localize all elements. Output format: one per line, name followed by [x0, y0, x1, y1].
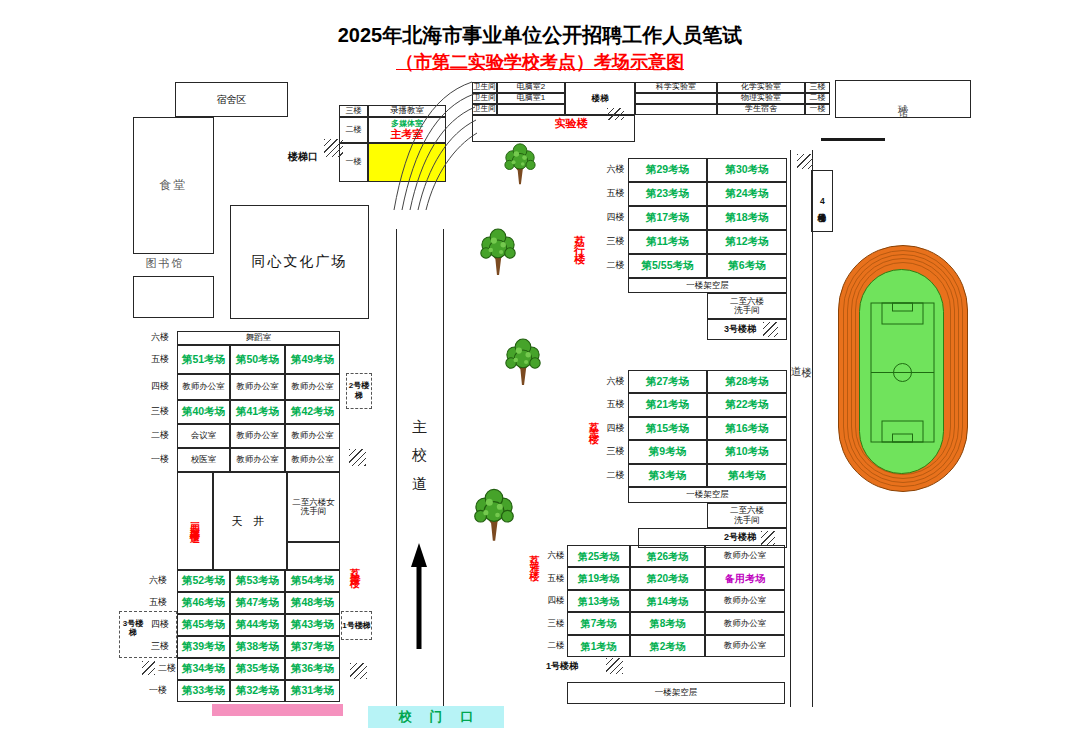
exam-room-cell: 第51考场: [177, 345, 230, 374]
dorm-area-box: 宿舍区: [175, 82, 288, 117]
floor-label: 三楼: [603, 230, 628, 254]
exam-room-cell: 第48考场: [285, 592, 340, 614]
exam-room-cell: 第11考场: [628, 230, 707, 254]
floor-label: 四楼: [603, 206, 628, 230]
office-cell: 教师办公室: [177, 374, 230, 400]
exam-room-cell: 第47考场: [230, 592, 285, 614]
floor-label: 二楼: [603, 254, 628, 278]
exam-room-cell: 第7考场: [567, 612, 630, 635]
exam-room-cell: 第1考场: [567, 635, 630, 657]
soccer-field: [859, 269, 944, 474]
clinic-cell: 校医室: [177, 448, 230, 472]
floor-label: 一楼: [145, 448, 175, 472]
exam-room-cell: 第20考场: [630, 567, 705, 590]
office-cell: 教师办公室: [705, 590, 785, 612]
exam-room-cell: 第30考场: [707, 158, 787, 182]
empty-cell: [497, 104, 565, 115]
exam-room-cell: 第49考场: [285, 345, 340, 374]
empty-cell: [287, 542, 340, 570]
exam-room-cell: 第24考场: [707, 182, 787, 206]
gate-pink-bar: [212, 704, 343, 716]
floor-label: 四楼: [545, 590, 567, 612]
courtyard-cell: 天 井: [213, 472, 287, 570]
lab-stairs-cell: 楼梯: [565, 82, 635, 115]
floor-label: 五楼: [603, 393, 628, 417]
computer-room-cell: 电脑室1: [497, 93, 565, 104]
exam-room-cell: 第40考场: [177, 400, 230, 424]
floor-label: 六楼: [545, 545, 567, 567]
ground-floor-cell: 一楼架空层: [628, 487, 787, 503]
floor-label: 一楼: [805, 104, 830, 115]
stair-hatch-icon: [606, 658, 623, 674]
exam-room-cell: 第52考场: [177, 570, 230, 592]
science-lab-cell: 科学实验室: [635, 82, 717, 93]
floor-label: 四楼: [603, 417, 628, 440]
floor-label: 三楼: [805, 82, 830, 93]
exam-room-cell: 第26考场: [630, 545, 705, 567]
exam-room-cell: 第45考场: [177, 614, 230, 636]
office-cell: 教师办公室: [230, 424, 285, 448]
stair3-label: 3号楼梯: [120, 615, 146, 643]
exam-room-cell: 第35考场: [230, 658, 285, 680]
exam-room-cell: 第12考场: [707, 230, 787, 254]
library-box: [133, 276, 214, 318]
empty-cell: [635, 104, 717, 115]
exam-room-cell: 第13考场: [567, 590, 630, 612]
stair-hatch-icon: [142, 661, 155, 675]
stair-hatch-icon: [350, 663, 367, 679]
office-cell: 教师办公室: [285, 424, 340, 448]
exam-room-cell: 第42考场: [285, 400, 340, 424]
page-subtitle: （市第二实验学校考点）考场示意图: [0, 50, 1080, 74]
exam-room-cell: 第22考场: [707, 393, 787, 417]
building-name-lizhi: 荔志楼: [586, 397, 601, 449]
floor-label: 五楼: [545, 567, 567, 590]
computer-room-cell: 电脑室2: [497, 82, 565, 93]
floor-label: 二楼: [545, 635, 567, 657]
floor-label: 二楼: [145, 424, 175, 448]
meeting-room-cell: 会议室: [177, 424, 230, 448]
direction-arrow-icon: [410, 543, 428, 653]
corridor-cell: 三四五楼楼道: [177, 472, 213, 570]
tree-icon: [477, 227, 519, 277]
page-title: 2025年北海市事业单位公开招聘工作人员笔试: [0, 22, 1080, 49]
floor-label: 五楼: [145, 345, 175, 374]
exam-room-cell: 第9考场: [628, 440, 707, 464]
floor-label: 二楼: [805, 93, 830, 104]
side-road-label: 楼道: [790, 358, 813, 488]
tree-icon: [502, 337, 544, 387]
exam-room-cell: 第31考场: [285, 680, 340, 702]
exam-room-cell: 第23考场: [628, 182, 707, 206]
floor-label: 一楼: [339, 143, 368, 182]
soccer-pitch-lines: [860, 270, 945, 475]
exam-room-cell: 第15考场: [628, 417, 707, 440]
floor-label: 六楼: [603, 158, 628, 182]
stair-entrance-label: 楼梯口: [281, 149, 325, 164]
exam-room-cell: 第28考场: [707, 370, 787, 393]
exam-room-cell: 第39考场: [177, 636, 230, 658]
exam-room-cell: 第38考场: [230, 636, 285, 658]
exam-room-cell: 第37考场: [285, 636, 340, 658]
office-cell: 教师办公室: [285, 374, 340, 400]
stair-hatch-icon: [607, 108, 624, 120]
exam-room-cell: 第43考场: [285, 614, 340, 636]
floor-label: 三楼: [339, 105, 368, 117]
office-cell: 教师办公室: [230, 448, 285, 472]
plaza-box: 同心文化广场: [230, 205, 369, 319]
stair-hatch-icon: [349, 449, 366, 466]
reserve-room-cell: 备用考场: [705, 567, 785, 590]
exam-room-cell: 第17考场: [628, 206, 707, 230]
stair4-box: 4号楼梯: [811, 170, 833, 232]
exam-room-cell: 第54考场: [285, 570, 340, 592]
building-name-lishan: 荔善楼: [347, 540, 362, 594]
student-dorm-cell: 学生宿舍: [717, 104, 805, 115]
exam-room-cell: 第2考场: [630, 635, 705, 657]
exam-room-cell: 第5/55考场: [628, 254, 707, 278]
exam-room-cell: 第8考场: [630, 612, 705, 635]
exam-room-cell: 第16考场: [707, 417, 787, 440]
floor-label: 四楼: [145, 374, 175, 400]
physics-lab-cell: 物理实验室: [717, 93, 805, 104]
washroom-cell: 二至六楼 洗手间: [707, 293, 787, 319]
stair-hatch-icon: [324, 139, 343, 157]
exam-room-cell: 第10考场: [707, 440, 787, 464]
ground-floor-cell: 一楼架空层: [628, 278, 787, 293]
stair1-label: 1号楼梯: [546, 660, 602, 673]
canteen-box: 食堂: [133, 117, 214, 254]
lab-building-name: 实验楼: [544, 116, 598, 131]
washroom-line2: 洗手间: [734, 306, 760, 315]
stair1-dashed-box: 1号楼梯: [341, 611, 372, 640]
stair2-dashed-box: 2号楼梯: [346, 373, 372, 409]
path-curves: [390, 80, 478, 212]
exam-room-cell: 第18考场: [707, 206, 787, 230]
exam-room-cell: 第33考场: [177, 680, 230, 702]
tree-icon: [502, 142, 538, 186]
office-cell: 教师办公室: [230, 374, 285, 400]
exam-room-cell: 第4考场: [707, 464, 787, 487]
office-cell: 教师办公室: [705, 635, 785, 657]
floor-label: 一楼: [142, 680, 174, 702]
exam-room-cell: 第29考场: [628, 158, 707, 182]
washroom-line2: 洗手间: [301, 507, 327, 516]
office-cell: 教师办公室: [705, 545, 785, 567]
wall-line: [821, 138, 885, 141]
exam-room-cell: 第3考场: [628, 464, 707, 487]
floor-label: 六楼: [603, 370, 628, 393]
exam-room-cell: 第19考场: [567, 567, 630, 590]
floor-label: 二楼: [156, 658, 178, 680]
exam-room-cell: 第14考场: [630, 590, 705, 612]
washroom-cell: 二至六楼女 洗手间: [287, 472, 340, 542]
washroom-line2: 洗手间: [734, 516, 760, 525]
exam-room-cell: 第32考场: [230, 680, 285, 702]
stair-hatch-icon: [763, 322, 778, 337]
school-gate: 校门口: [368, 706, 504, 728]
exam-room-cell: 第46考场: [177, 592, 230, 614]
floor-label: 二楼: [339, 117, 368, 143]
exam-room-cell: 第21考场: [628, 393, 707, 417]
floor-label: 二楼: [603, 464, 628, 487]
building-name-liya: 荔雅楼: [526, 524, 542, 594]
exam-room-cell: 第34考场: [177, 658, 230, 680]
running-track: [838, 245, 968, 492]
office-cell: 教师办公室: [705, 612, 785, 635]
exam-room-cell: 第44考场: [230, 614, 285, 636]
stair-hatch-icon: [761, 531, 775, 545]
floor-label: 六楼: [142, 570, 174, 592]
floor-label: 五楼: [603, 182, 628, 206]
exam-room-cell: 第50考场: [230, 345, 285, 374]
ball-hall-box: 球馆: [835, 80, 971, 118]
floor-label: 三楼: [145, 400, 175, 424]
exam-room-cell: 第25考场: [567, 545, 630, 567]
exam-room-cell: 第53考场: [230, 570, 285, 592]
empty-cell: [635, 93, 717, 104]
floor-label: 三楼: [603, 440, 628, 464]
washroom-cell: 二至六楼 洗手间: [707, 503, 787, 528]
exam-room-cell: 第36考场: [285, 658, 340, 680]
ground-floor-cell: 一楼架空层: [567, 682, 785, 704]
stair-hatch-icon: [797, 154, 813, 169]
library-label: 图书馆: [133, 254, 197, 272]
chemistry-lab-cell: 化学实验室: [717, 82, 805, 93]
floor-label: 三楼: [545, 612, 567, 635]
exam-room-cell: 第27考场: [628, 370, 707, 393]
floor-label: 六楼: [145, 331, 175, 345]
building-name-lixing: 荔行楼: [571, 204, 587, 274]
exam-room-cell: 第41考场: [230, 400, 285, 424]
campus-map: 2025年北海市事业单位公开招聘工作人员笔试 （市第二实验学校考点）考场示意图 …: [0, 0, 1080, 753]
dance-room-cell: 舞蹈室: [177, 331, 340, 345]
exam-room-cell: 第6考场: [707, 254, 787, 278]
tree-icon: [471, 487, 517, 543]
office-cell: 教师办公室: [285, 448, 340, 472]
